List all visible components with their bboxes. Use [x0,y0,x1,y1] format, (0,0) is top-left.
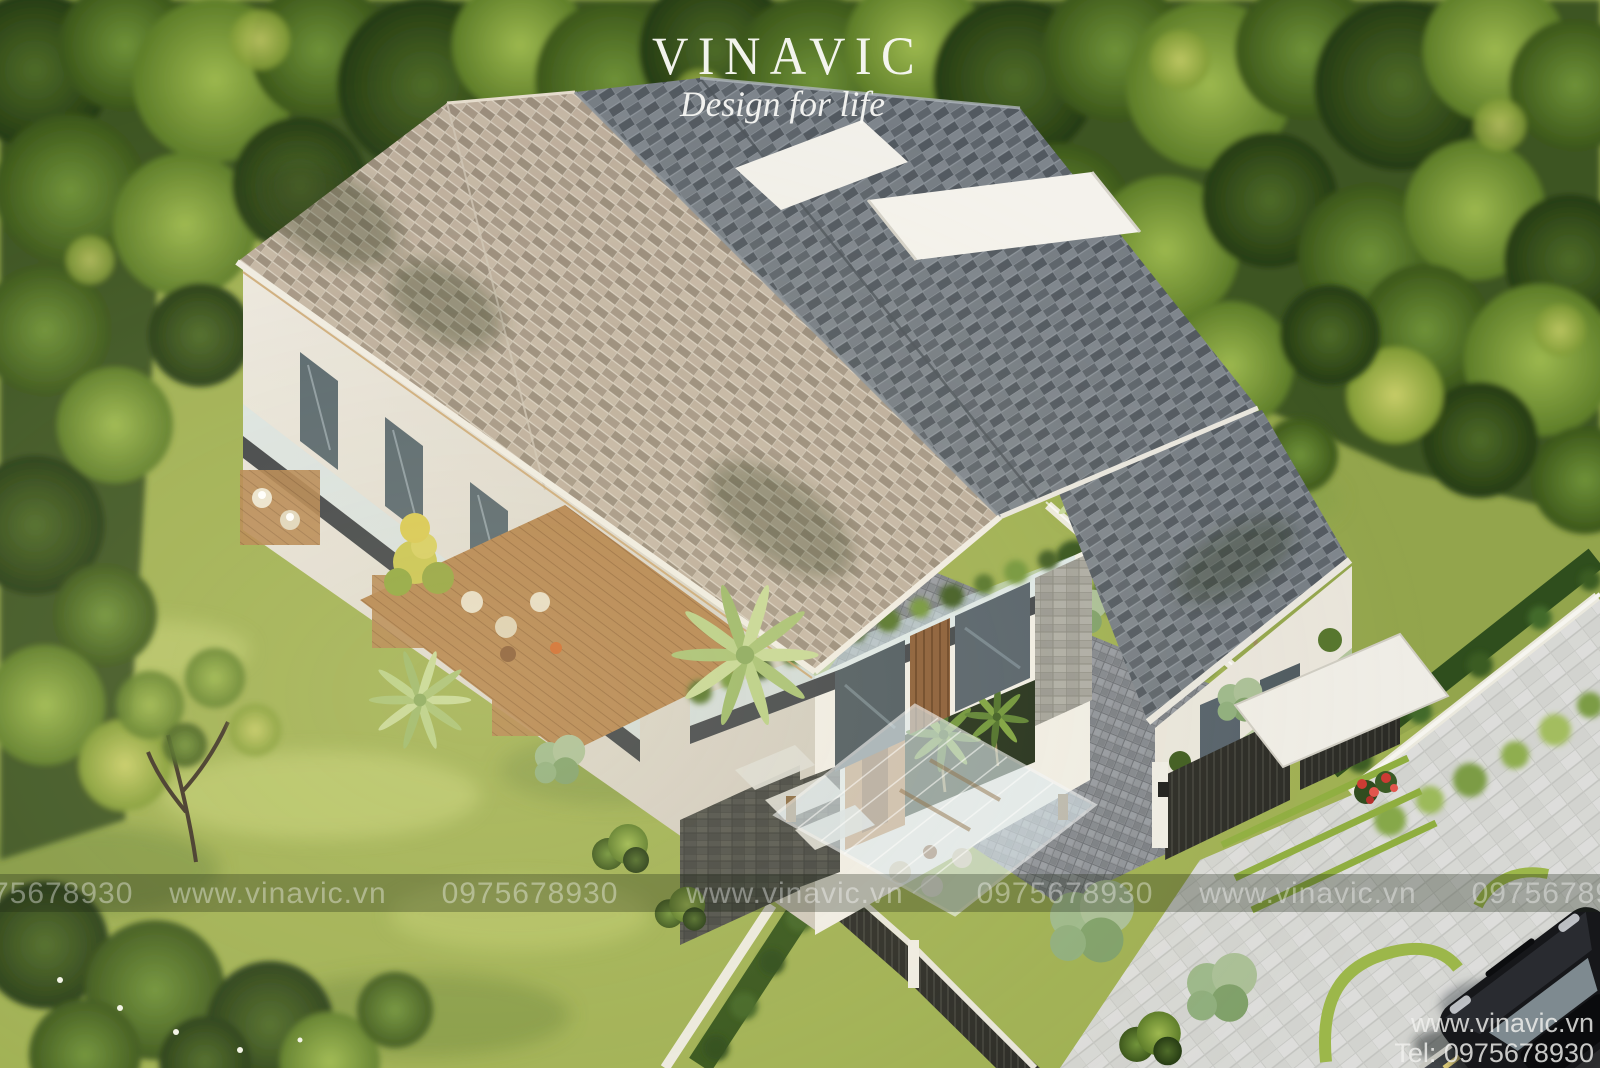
watermark-band: 0975678930 www.vinavic.vn 0975678930 www… [0,874,1600,912]
villa-aerial-render: 0975678930 www.vinavic.vn 0975678930 www… [0,0,1600,1068]
watermark-text: 0975678930 [442,877,619,910]
corner-url: www.vinavic.vn [1410,1008,1594,1038]
brand-logo: VINAVIC [652,26,924,86]
brand-header: VINAVIC Design for life [652,26,924,124]
watermark-text: 0975678930 [1472,877,1600,910]
watermark-text: 0975678930 [977,877,1154,910]
watermark-text: www.vinavic.vn [1198,877,1416,910]
brand-tagline: Design for life [679,84,885,124]
watermark-corner: www.vinavic.vn Tel: 0975678930 [1394,1008,1594,1068]
watermark-text: 0975678930 [0,877,133,910]
watermark-text: www.vinavic.vn [685,877,903,910]
render-canvas: 0975678930 www.vinavic.vn 0975678930 www… [0,0,1600,1068]
watermark-text: www.vinavic.vn [168,877,386,910]
corner-phone: Tel: 0975678930 [1394,1038,1594,1068]
